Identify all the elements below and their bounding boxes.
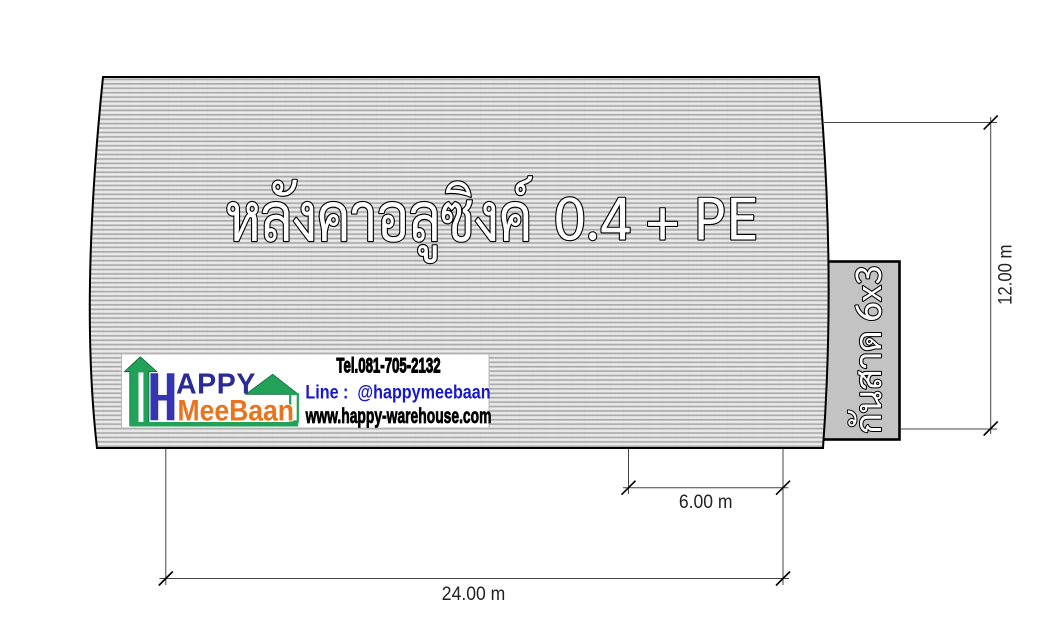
svg-text:Tel.081-705-2132: Tel.081-705-2132 bbox=[336, 353, 440, 377]
svg-text:6.00 m: 6.00 m bbox=[679, 490, 733, 512]
svg-text:MeeBaan: MeeBaan bbox=[178, 394, 295, 427]
svg-text:www.happy-warehouse.com: www.happy-warehouse.com bbox=[305, 404, 492, 428]
svg-text:12.00 m: 12.00 m bbox=[995, 245, 1016, 305]
svg-text:24.00 m: 24.00 m bbox=[442, 582, 505, 604]
svg-text:Line : @happymeebaan: Line : @happymeebaan bbox=[305, 381, 490, 403]
